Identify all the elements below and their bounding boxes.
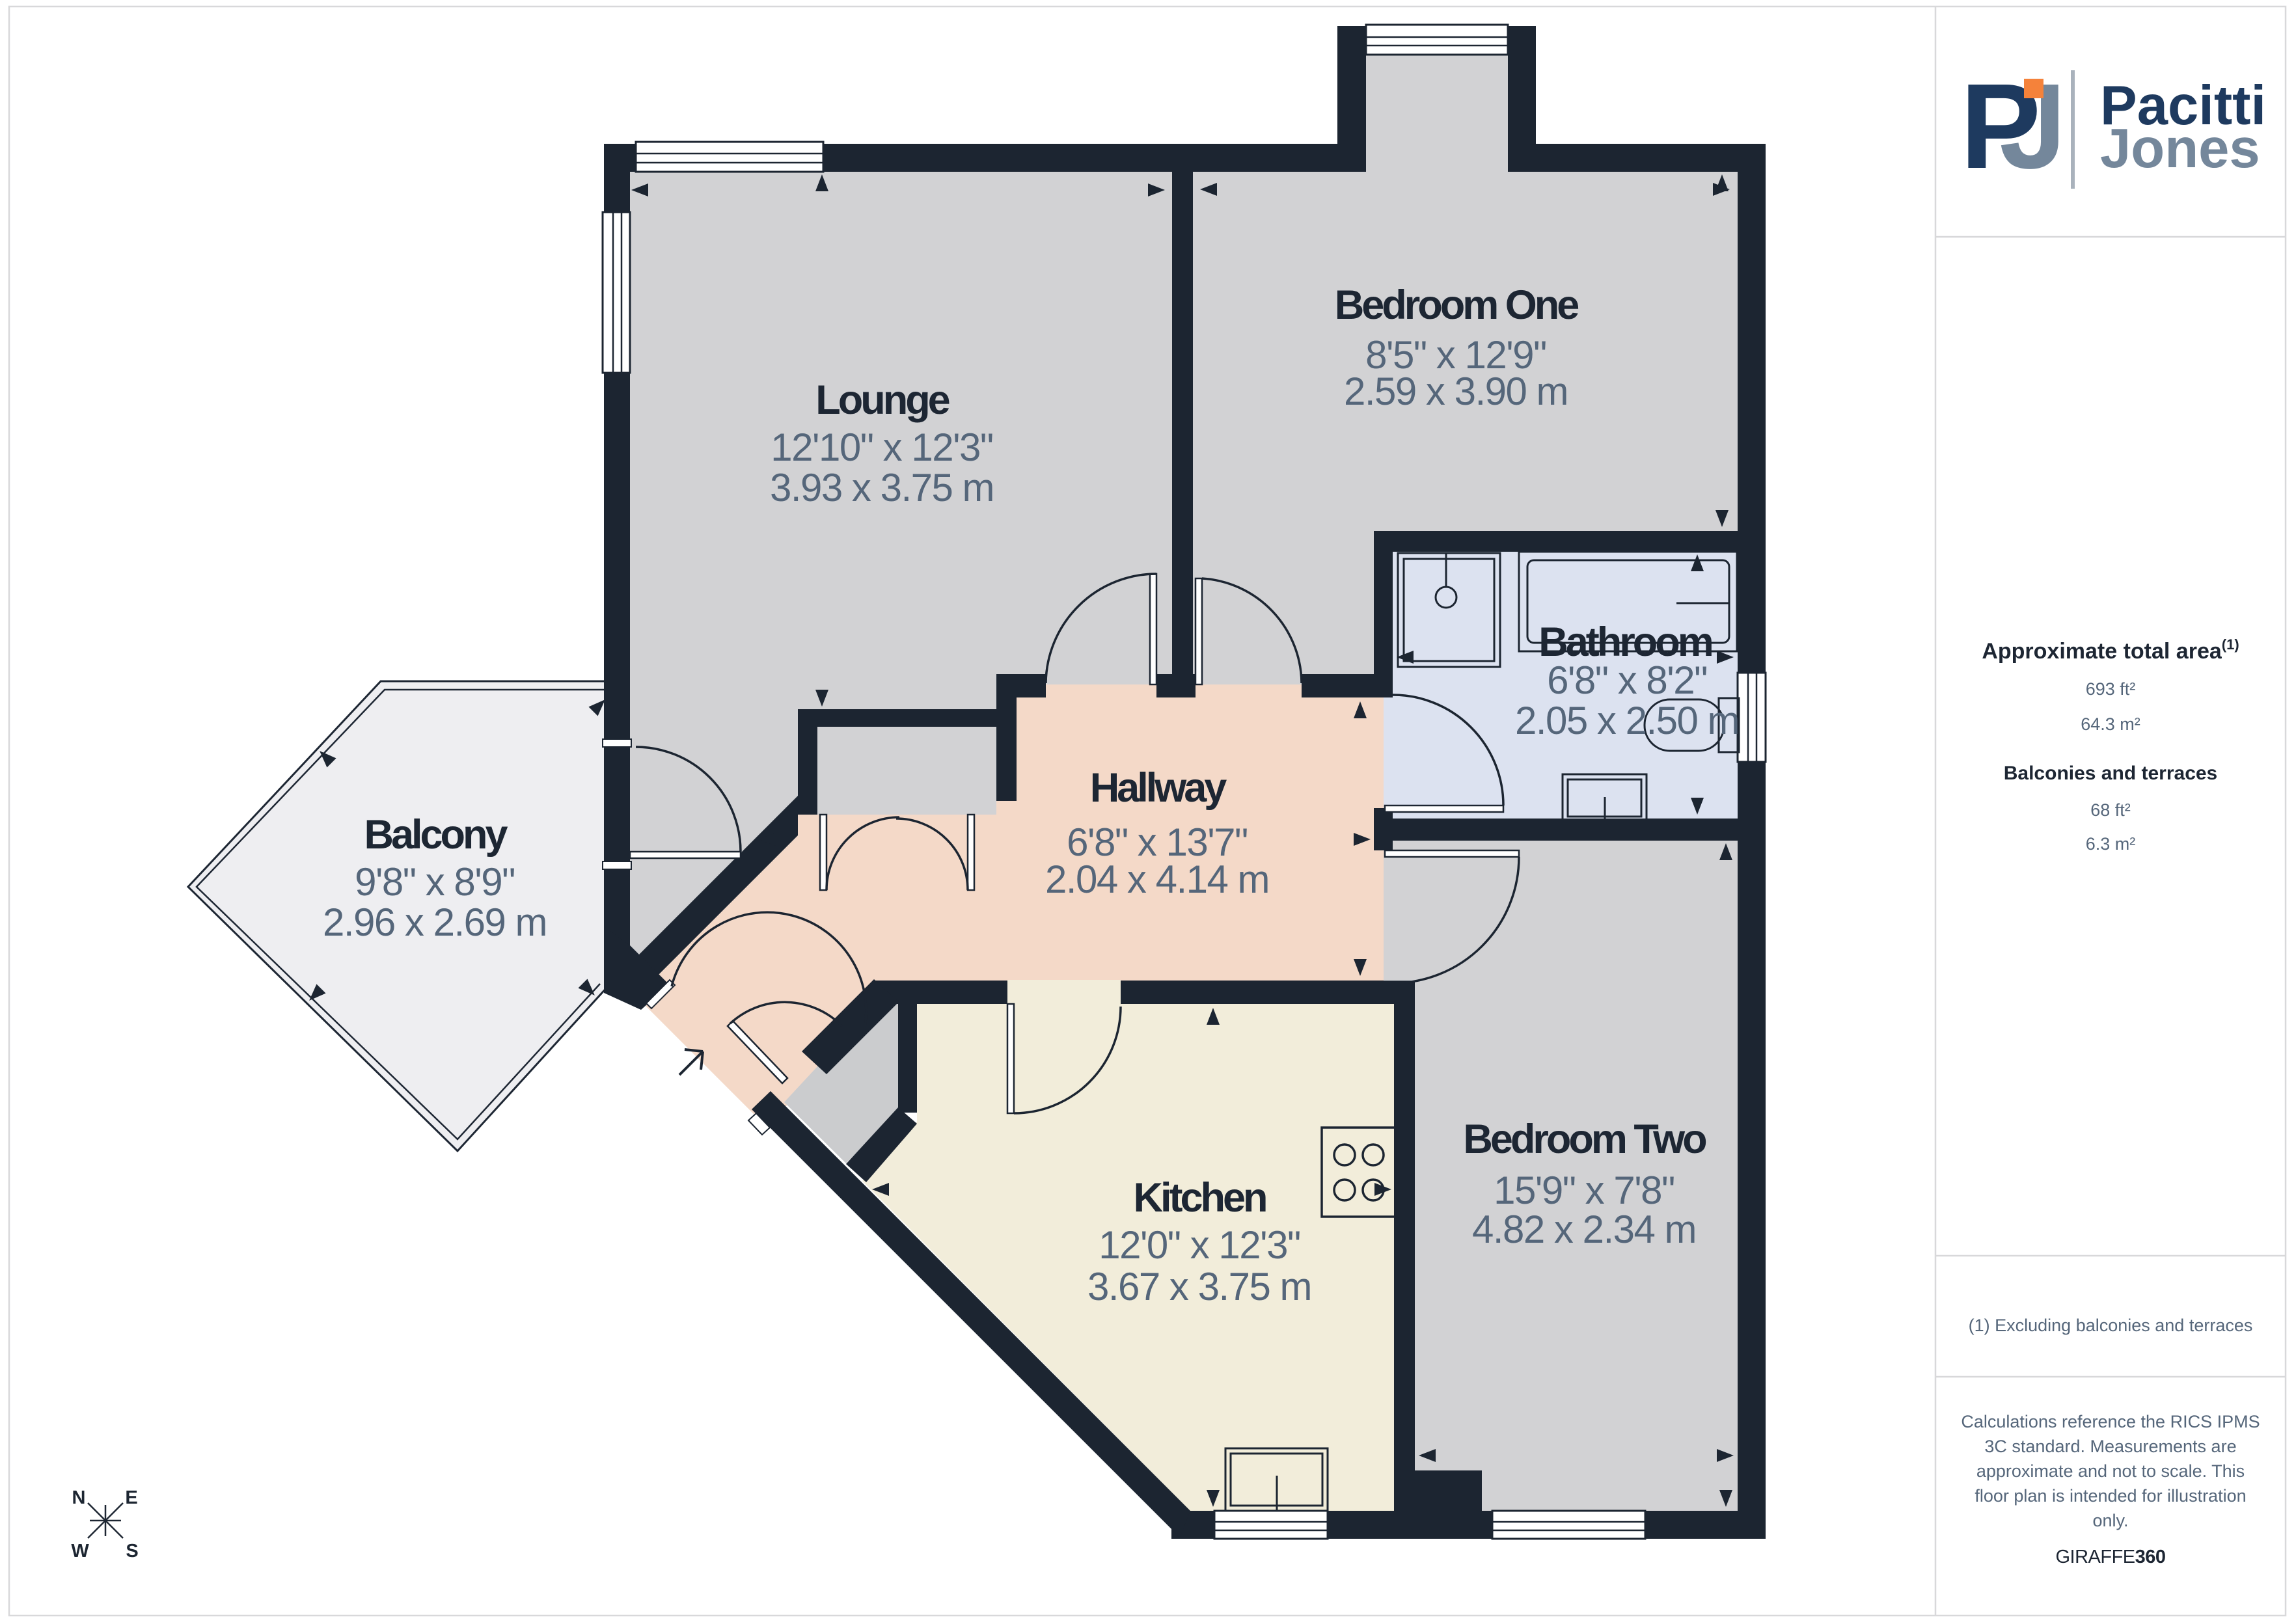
svg-text:6.3 m²: 6.3 m² — [2086, 834, 2136, 854]
svg-text:9'8" x 8'9": 9'8" x 8'9" — [355, 860, 515, 904]
svg-text:Balconies and terraces: Balconies and terraces — [2004, 763, 2218, 784]
svg-text:Lounge: Lounge — [815, 377, 949, 423]
svg-text:2.05 x 2.50 m: 2.05 x 2.50 m — [1515, 699, 1739, 742]
svg-text:W: W — [71, 1541, 89, 1562]
svg-text:3.93 x 3.75 m: 3.93 x 3.75 m — [770, 466, 994, 509]
svg-text:3C standard. Measurements are: 3C standard. Measurements are — [1984, 1437, 2236, 1456]
svg-text:4.82 x 2.34 m: 4.82 x 2.34 m — [1472, 1208, 1696, 1251]
svg-text:E: E — [125, 1487, 137, 1508]
svg-text:64.3 m²: 64.3 m² — [2081, 714, 2140, 734]
svg-text:floor plan is intended for ill: floor plan is intended for illustration — [1975, 1486, 2246, 1506]
svg-text:Calculations reference the RIC: Calculations reference the RICS IPMS — [1961, 1412, 2260, 1431]
svg-text:Approximate total area(1): Approximate total area(1) — [1982, 636, 2239, 664]
svg-text:approximate and not to scale.: approximate and not to scale. This — [1976, 1461, 2245, 1481]
svg-text:Jones: Jones — [2100, 118, 2260, 180]
svg-text:2.04 x 4.14 m: 2.04 x 4.14 m — [1045, 858, 1269, 901]
svg-text:2.59 x 3.90 m: 2.59 x 3.90 m — [1344, 370, 1568, 413]
svg-text:3.67 x 3.75 m: 3.67 x 3.75 m — [1087, 1265, 1311, 1308]
svg-text:Kitchen: Kitchen — [1133, 1175, 1266, 1221]
svg-text:S: S — [126, 1541, 138, 1562]
svg-text:Hallway: Hallway — [1090, 765, 1227, 811]
svg-text:68 ft²: 68 ft² — [2090, 800, 2131, 820]
svg-text:6'8" x 8'2": 6'8" x 8'2" — [1547, 658, 1707, 702]
svg-text:GIRAFFE360: GIRAFFE360 — [2055, 1547, 2165, 1567]
svg-text:693 ft²: 693 ft² — [2086, 679, 2136, 699]
svg-text:Bedroom Two: Bedroom Two — [1463, 1116, 1706, 1162]
svg-text:only.: only. — [2092, 1511, 2128, 1530]
svg-text:15'9" x 7'8": 15'9" x 7'8" — [1494, 1169, 1674, 1212]
svg-text:(1) Excluding balconies and te: (1) Excluding balconies and terraces — [1969, 1316, 2253, 1335]
svg-text:Balcony: Balcony — [364, 812, 508, 858]
svg-text:12'0" x 12'3": 12'0" x 12'3" — [1099, 1223, 1300, 1267]
svg-text:2.96 x 2.69 m: 2.96 x 2.69 m — [323, 900, 547, 944]
svg-text:N: N — [72, 1487, 86, 1508]
svg-text:12'10" x 12'3": 12'10" x 12'3" — [771, 426, 992, 469]
svg-text:Bedroom One: Bedroom One — [1335, 282, 1579, 328]
